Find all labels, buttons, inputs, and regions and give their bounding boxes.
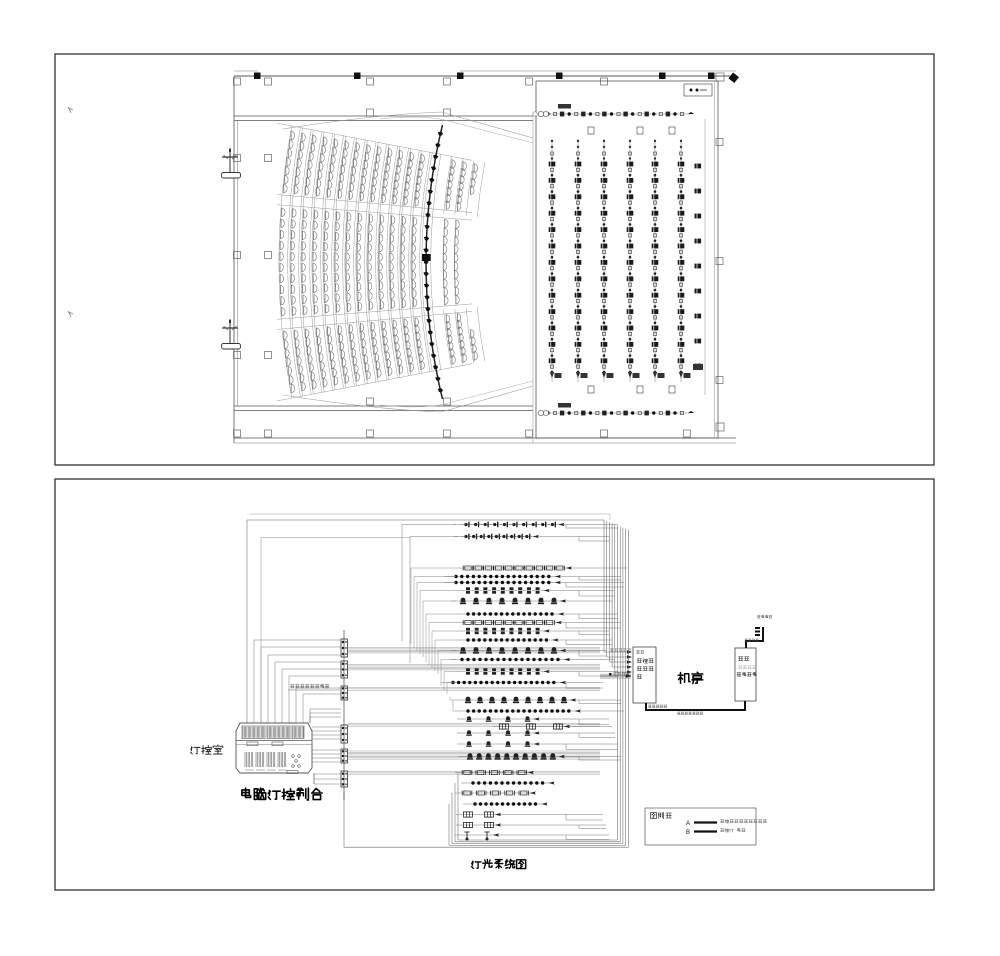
- svg-text:A: A: [686, 821, 690, 827]
- svg-text:B: B: [686, 830, 690, 836]
